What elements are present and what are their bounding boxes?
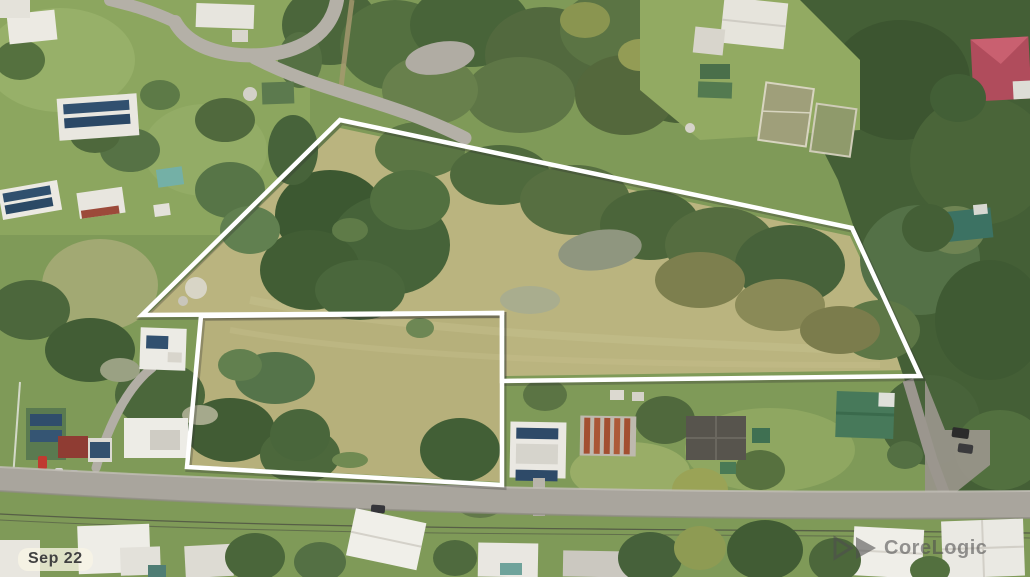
green-roof-house [835, 391, 895, 439]
aerial-photo-scene [0, 0, 1030, 577]
solar-house [509, 422, 566, 482]
rust-shed [580, 416, 637, 457]
pool [156, 166, 184, 187]
solar-roof-building [57, 93, 140, 140]
house-west-of-parcel [139, 327, 186, 371]
date-stamp: Sep 22 [18, 548, 93, 571]
watermark-text: CoreLogic [884, 537, 987, 560]
aerial-photo: Sep 22 CoreLogic [0, 0, 1030, 577]
corelogic-logo-icon [832, 535, 878, 561]
corelogic-watermark: CoreLogic [832, 535, 987, 561]
